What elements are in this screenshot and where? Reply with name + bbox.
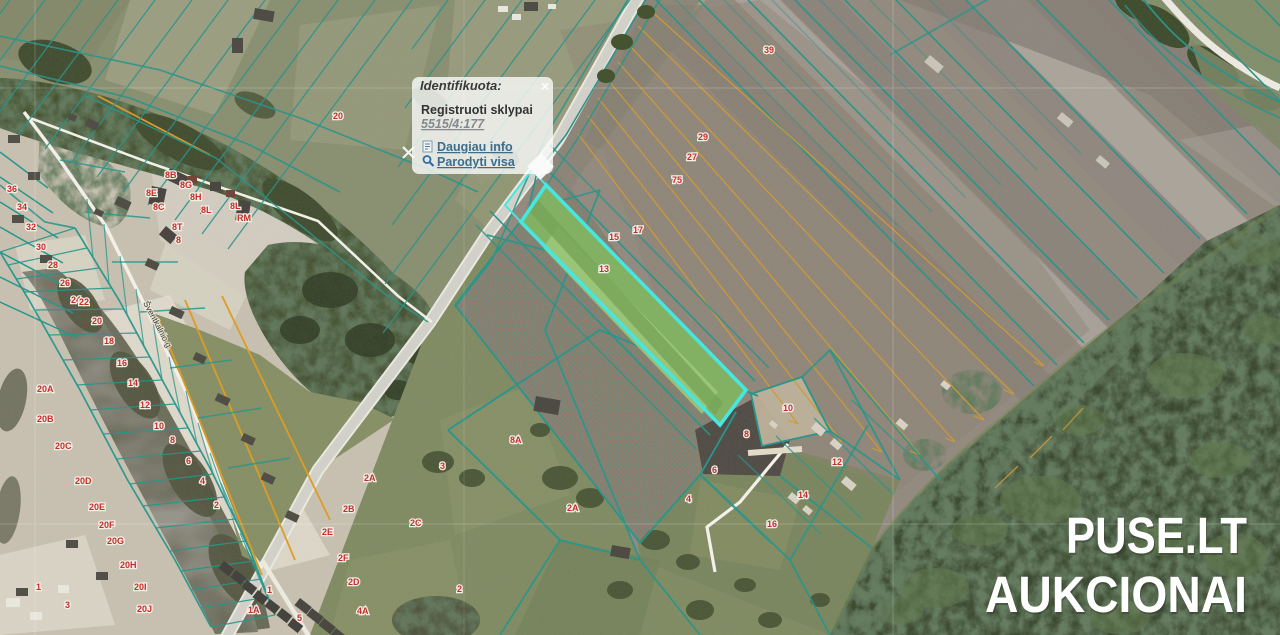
svg-text:20D: 20D xyxy=(75,476,92,486)
svg-text:2A: 2A xyxy=(364,473,376,483)
svg-text:2F: 2F xyxy=(338,553,349,563)
svg-text:5: 5 xyxy=(297,613,302,623)
svg-text:2E: 2E xyxy=(322,527,333,537)
svg-text:1: 1 xyxy=(267,585,272,595)
svg-text:32: 32 xyxy=(26,222,36,232)
svg-text:2D: 2D xyxy=(348,577,360,587)
svg-text:26: 26 xyxy=(60,278,70,288)
svg-text:1A: 1A xyxy=(248,605,260,615)
svg-text:12: 12 xyxy=(140,400,150,410)
svg-text:8C: 8C xyxy=(153,202,165,212)
svg-text:8L: 8L xyxy=(201,205,212,215)
svg-text:Parodyti visa: Parodyti visa xyxy=(437,155,516,169)
svg-text:Identifikuota:: Identifikuota: xyxy=(420,78,502,93)
svg-text:20E: 20E xyxy=(89,502,105,512)
svg-text:20B: 20B xyxy=(37,414,54,424)
svg-text:17: 17 xyxy=(633,225,643,235)
svg-text:8: 8 xyxy=(176,235,181,245)
svg-text:AUKCIONAI: AUKCIONAI xyxy=(985,566,1247,623)
svg-text:36: 36 xyxy=(7,184,17,194)
svg-text:22: 22 xyxy=(79,297,89,307)
svg-text:2B: 2B xyxy=(343,504,355,514)
svg-text:14: 14 xyxy=(128,378,138,388)
svg-text:8L: 8L xyxy=(230,201,241,211)
svg-text:10: 10 xyxy=(783,403,793,413)
svg-text:20C: 20C xyxy=(55,441,72,451)
svg-text:PUSE.LT: PUSE.LT xyxy=(1066,507,1247,564)
svg-text:75: 75 xyxy=(672,175,682,185)
svg-text:2: 2 xyxy=(457,584,462,594)
svg-text:8B: 8B xyxy=(165,170,177,180)
svg-text:8G: 8G xyxy=(180,180,192,190)
svg-text:2: 2 xyxy=(214,500,219,510)
svg-text:4: 4 xyxy=(686,494,691,504)
svg-text:8E: 8E xyxy=(146,188,157,198)
svg-text:8: 8 xyxy=(744,429,749,439)
svg-text:6: 6 xyxy=(186,456,191,466)
svg-text:13: 13 xyxy=(599,264,609,274)
svg-text:4: 4 xyxy=(200,476,205,486)
svg-text:8A: 8A xyxy=(510,435,522,445)
svg-text:20J: 20J xyxy=(137,604,152,614)
svg-text:28: 28 xyxy=(48,260,58,270)
svg-text:8: 8 xyxy=(170,435,175,445)
svg-text:39: 39 xyxy=(764,45,774,55)
svg-text:4A: 4A xyxy=(357,606,369,616)
svg-text:20F: 20F xyxy=(99,520,115,530)
svg-text:14: 14 xyxy=(798,490,808,500)
svg-text:20: 20 xyxy=(333,111,343,121)
svg-text:2A: 2A xyxy=(567,503,579,513)
svg-text:10: 10 xyxy=(154,421,164,431)
svg-text:3: 3 xyxy=(65,600,70,610)
svg-text:8H: 8H xyxy=(190,192,202,202)
svg-text:18: 18 xyxy=(104,336,114,346)
svg-text:15: 15 xyxy=(609,232,619,242)
svg-text:Daugiau info: Daugiau info xyxy=(437,140,513,154)
svg-text:16: 16 xyxy=(767,519,777,529)
svg-text:20I: 20I xyxy=(134,582,147,592)
svg-text:×: × xyxy=(541,78,549,94)
svg-text:Registruoti sklypai: Registruoti sklypai xyxy=(421,103,533,117)
svg-text:20G: 20G xyxy=(107,536,124,546)
svg-text:20H: 20H xyxy=(120,560,137,570)
svg-text:5515/4:177: 5515/4:177 xyxy=(421,117,485,131)
svg-text:2C: 2C xyxy=(410,518,422,528)
svg-text:16: 16 xyxy=(117,358,127,368)
svg-text:20A: 20A xyxy=(37,384,54,394)
svg-text:30: 30 xyxy=(36,242,46,252)
svg-text:34: 34 xyxy=(17,202,27,212)
svg-text:6: 6 xyxy=(712,465,717,475)
svg-text:12: 12 xyxy=(832,457,842,467)
svg-text:8T: 8T xyxy=(172,222,183,232)
svg-text:27: 27 xyxy=(687,152,697,162)
svg-text:29: 29 xyxy=(698,132,708,142)
svg-text:20: 20 xyxy=(92,316,102,326)
svg-text:3: 3 xyxy=(440,461,445,471)
svg-text:1: 1 xyxy=(36,582,41,592)
svg-text:RM: RM xyxy=(237,213,251,223)
